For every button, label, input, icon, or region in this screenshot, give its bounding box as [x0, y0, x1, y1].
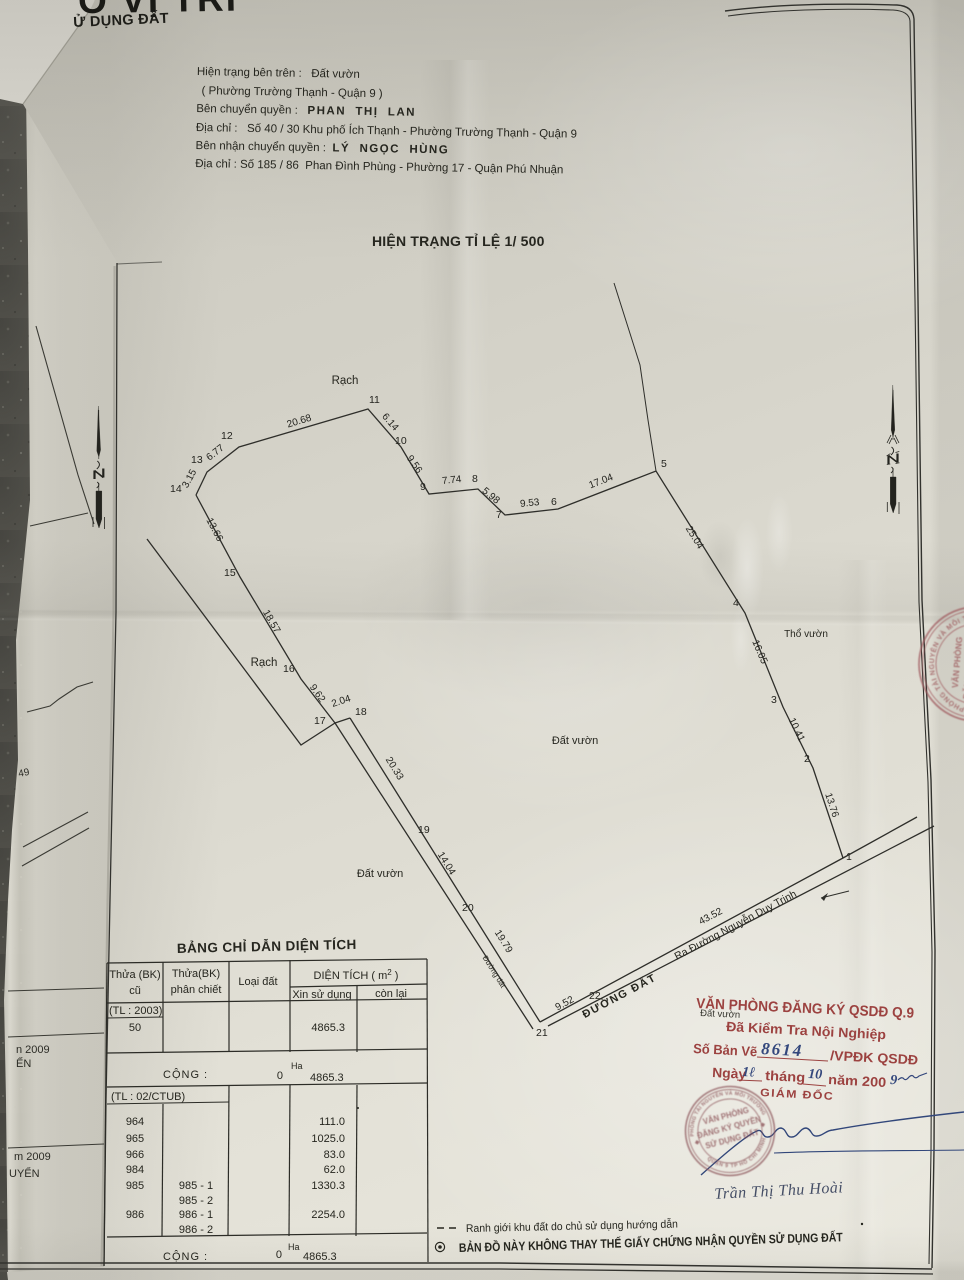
svg-text:966: 966 — [126, 1149, 144, 1161]
svg-text:2: 2 — [804, 753, 810, 765]
svg-text:m 2009: m 2009 — [14, 1151, 51, 1163]
svg-text:13.66: 13.66 — [203, 516, 225, 544]
svg-text:Đất vườn: Đất vườn — [552, 735, 598, 747]
svg-text:(TL : 02/CTUB): (TL : 02/CTUB) — [111, 1091, 185, 1103]
svg-text:10: 10 — [395, 435, 407, 447]
svg-text:17: 17 — [314, 715, 326, 727]
svg-text:còn lại: còn lại — [375, 988, 407, 1000]
svg-text:985 - 1: 985 - 1 — [179, 1180, 213, 1192]
svg-text:UYỂN: UYỂN — [9, 1167, 40, 1180]
svg-text:15: 15 — [224, 567, 236, 579]
svg-text:985: 985 — [126, 1180, 144, 1192]
svg-text:11: 11 — [369, 394, 380, 406]
svg-text:20: 20 — [462, 902, 474, 914]
svg-text:62.0: 62.0 — [324, 1164, 345, 1176]
svg-text:◆: ◆ — [760, 1122, 766, 1129]
svg-text:1330.3: 1330.3 — [311, 1180, 345, 1192]
svg-text:3: 3 — [771, 694, 777, 706]
svg-text:25.04: 25.04 — [683, 524, 706, 551]
svg-text:1ℓ: 1ℓ — [742, 1065, 756, 1081]
svg-text:4865.3: 4865.3 — [310, 1072, 344, 1084]
svg-text:6.14: 6.14 — [379, 411, 400, 433]
svg-text:7.74: 7.74 — [441, 474, 462, 487]
svg-text:CỘNG :: CỘNG : — [163, 1068, 208, 1081]
svg-text:Loại đất: Loại đất — [238, 976, 277, 988]
svg-text:(TL : 2003): (TL : 2003) — [109, 1005, 162, 1017]
svg-text:cũ: cũ — [129, 985, 141, 997]
svg-text:tháng: tháng — [765, 1068, 806, 1085]
svg-text:13: 13 — [191, 454, 203, 466]
svg-text:DIỆN TÍCH ( m2 ): DIỆN TÍCH ( m2 ) — [314, 968, 399, 982]
svg-text:6.77: 6.77 — [204, 442, 226, 463]
svg-text:4865.3: 4865.3 — [311, 1022, 345, 1034]
svg-text:19: 19 — [418, 824, 430, 836]
svg-text:1: 1 — [846, 851, 852, 863]
svg-text:BẢNG CHỈ DẪN DIỆN TÍCH: BẢNG CHỈ DẪN DIỆN TÍCH — [177, 937, 357, 956]
svg-text:Thửa(BK): Thửa(BK) — [172, 968, 220, 980]
svg-text:4: 4 — [733, 597, 739, 609]
svg-text:12: 12 — [221, 430, 233, 442]
svg-text:Đường đất: Đường đất — [481, 954, 508, 990]
svg-text:phân chiết: phân chiết — [171, 984, 222, 996]
svg-text:CỘNG :: CỘNG : — [163, 1250, 208, 1263]
svg-text:83.0: 83.0 — [324, 1149, 345, 1161]
svg-text:Xin sử dụng: Xin sử dụng — [292, 989, 351, 1001]
svg-text:Rạch: Rạch — [332, 375, 359, 387]
svg-text:n 2009: n 2009 — [16, 1044, 50, 1056]
svg-text:49: 49 — [17, 767, 31, 780]
svg-text:8: 8 — [472, 473, 478, 485]
svg-text:Ranh giới khu đất do chủ sử dụ: Ranh giới khu đất do chủ sử dụng hướng d… — [466, 1218, 678, 1235]
svg-text:1025.0: 1025.0 — [311, 1133, 345, 1145]
svg-text:16: 16 — [283, 663, 295, 675]
svg-text:0: 0 — [277, 1070, 283, 1082]
svg-text:21: 21 — [536, 1027, 548, 1039]
svg-text:18.57: 18.57 — [260, 608, 282, 636]
svg-text:9.53: 9.53 — [519, 497, 540, 510]
svg-text:4865.3: 4865.3 — [303, 1251, 337, 1263]
svg-text:Số Bản Vẽ: Số Bản Vẽ — [693, 1041, 758, 1059]
svg-text:18: 18 — [355, 706, 367, 718]
svg-text:Ra Đường Nguyễn Duy Trinh: Ra Đường Nguyễn Duy Trinh — [672, 887, 799, 963]
svg-text:/VPĐK QSDĐ: /VPĐK QSDĐ — [830, 1048, 919, 1068]
svg-text:10: 10 — [808, 1067, 823, 1083]
svg-text:0: 0 — [276, 1249, 282, 1261]
svg-text:9.52: 9.52 — [554, 994, 577, 1013]
svg-text:Thửa (BK): Thửa (BK) — [109, 969, 160, 981]
svg-text:16.05: 16.05 — [749, 638, 769, 666]
svg-text:50: 50 — [129, 1022, 141, 1034]
svg-text:20.68: 20.68 — [286, 413, 314, 431]
svg-text:Đã Kiểm Tra Nội Nghiệp: Đã Kiểm Tra Nội Nghiệp — [726, 1019, 887, 1042]
svg-text:9: 9 — [420, 481, 426, 493]
svg-text:984: 984 — [126, 1164, 144, 1176]
svg-text:10.41: 10.41 — [786, 716, 807, 744]
svg-text:GIÁM ĐỐC: GIÁM ĐỐC — [760, 1085, 835, 1103]
svg-text:Rạch: Rạch — [251, 657, 278, 669]
svg-text:6: 6 — [551, 496, 557, 508]
svg-text:2254.0: 2254.0 — [311, 1209, 345, 1221]
svg-text:Thổ vườn: Thổ vườn — [784, 628, 828, 640]
svg-text:ẾN: ẾN — [16, 1057, 31, 1070]
svg-text:2.04: 2.04 — [330, 693, 352, 710]
svg-text:986: 986 — [126, 1209, 144, 1221]
svg-text:9.56: 9.56 — [404, 453, 424, 476]
svg-text:Ha: Ha — [288, 1242, 300, 1252]
svg-text:964: 964 — [126, 1116, 144, 1128]
svg-text:986 - 1: 986 - 1 — [179, 1209, 213, 1221]
svg-text:14.04: 14.04 — [435, 850, 458, 877]
svg-text:20.33: 20.33 — [383, 755, 406, 782]
svg-text:9: 9 — [890, 1073, 898, 1088]
svg-text:Ha: Ha — [291, 1061, 303, 1071]
svg-text:965: 965 — [126, 1133, 144, 1145]
svg-text:Đất vườn: Đất vườn — [357, 868, 403, 880]
svg-text:986 - 2: 986 - 2 — [179, 1224, 213, 1236]
svg-text:111.0: 111.0 — [319, 1116, 345, 1128]
svg-text:985 - 2: 985 - 2 — [179, 1195, 213, 1207]
svg-text:5: 5 — [661, 458, 667, 470]
svg-text:8614: 8614 — [761, 1039, 804, 1060]
svg-text:năm 200: năm 200 — [828, 1072, 887, 1090]
svg-text:5.98: 5.98 — [480, 486, 502, 507]
svg-text:3.15: 3.15 — [180, 467, 199, 490]
svg-text:9.62: 9.62 — [307, 682, 327, 705]
svg-text:7: 7 — [496, 509, 502, 521]
